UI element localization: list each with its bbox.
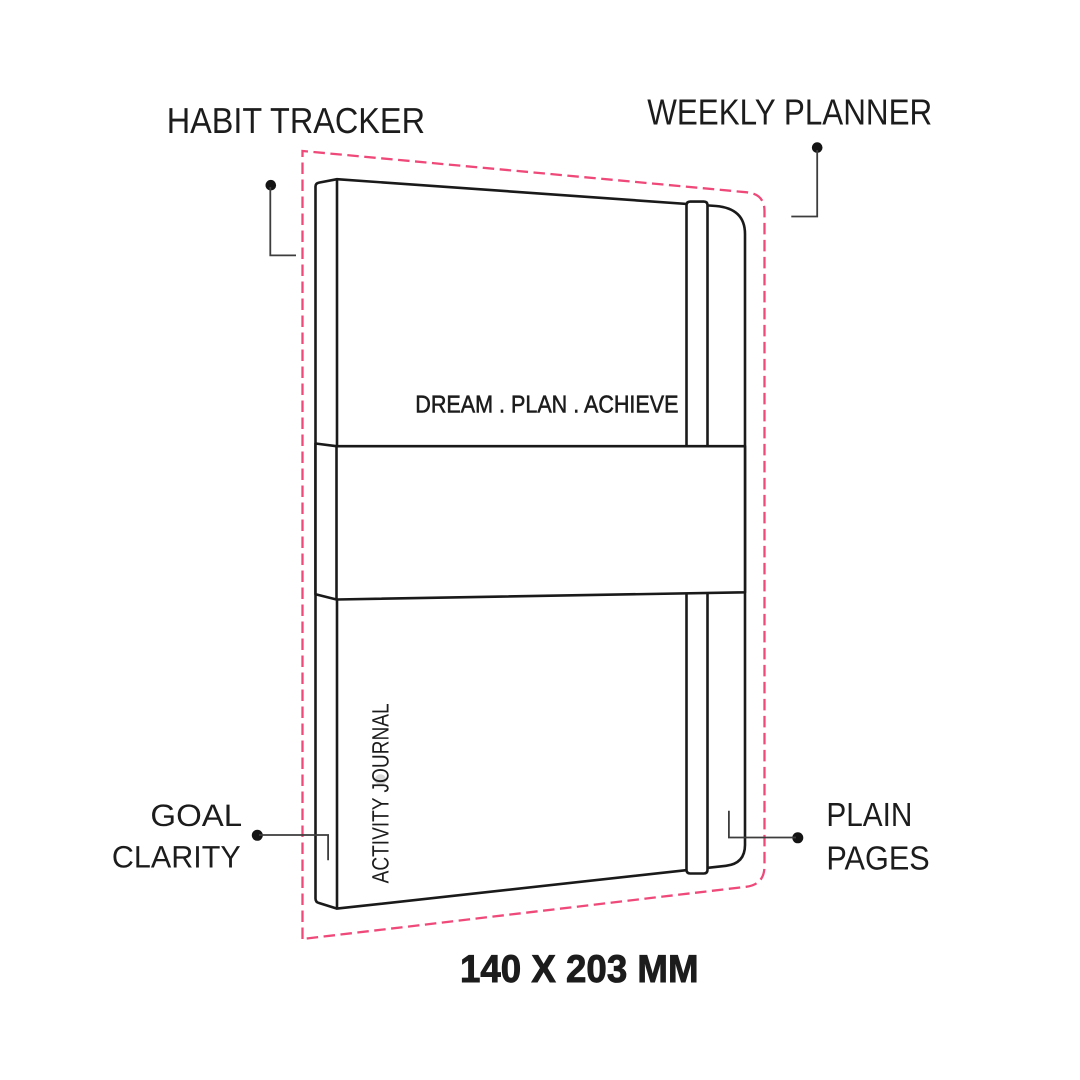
svg-text:140 X 203 MM: 140 X 203 MM <box>460 948 699 991</box>
svg-text:WEEKLY PLANNER: WEEKLY PLANNER <box>647 92 932 133</box>
svg-text:PLAIN: PLAIN <box>826 797 912 834</box>
svg-text:HABIT TRACKER: HABIT TRACKER <box>167 100 425 141</box>
svg-text:CLARITY: CLARITY <box>112 839 241 874</box>
svg-text:GOAL: GOAL <box>150 798 242 833</box>
svg-text:DREAM . PLAN . ACHIEVE: DREAM . PLAN . ACHIEVE <box>415 391 678 418</box>
svg-text:ACTIVITY JOURNAL: ACTIVITY JOURNAL <box>369 703 395 883</box>
svg-text:PAGES: PAGES <box>826 841 929 878</box>
